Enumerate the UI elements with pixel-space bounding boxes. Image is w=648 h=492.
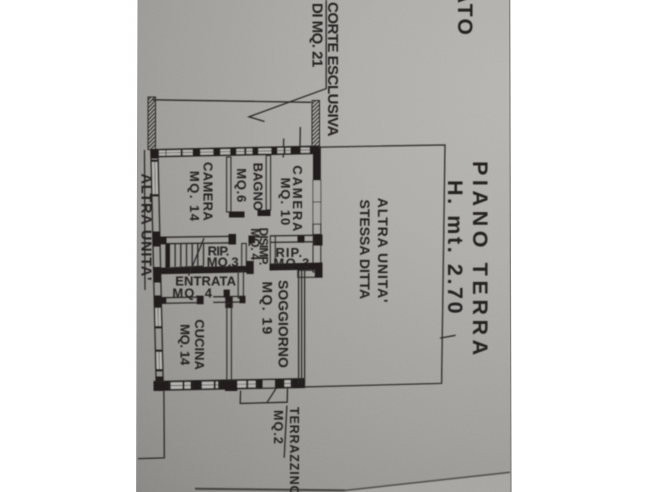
svg-text:BAGNO: BAGNO [251, 163, 266, 211]
svg-text:PIANO TERRA: PIANO TERRA [468, 161, 492, 360]
svg-text:ATO: ATO [453, 0, 476, 37]
svg-text:MQ. 19: MQ. 19 [259, 281, 275, 335]
svg-text:MQ.2: MQ.2 [271, 410, 285, 445]
svg-text:ALTRA UNITA': ALTRA UNITA' [375, 198, 391, 304]
svg-text:TERRAZZINO: TERRAZZINO [287, 407, 301, 492]
svg-text:MQ. 4: MQ. 4 [248, 228, 262, 260]
svg-text:ALTRA UNITA': ALTRA UNITA' [138, 174, 154, 282]
svg-text:MQ.6: MQ.6 [234, 168, 249, 203]
svg-text:MQ. 4: MQ. 4 [172, 285, 213, 300]
svg-text:STESSA DITTA: STESSA DITTA [357, 200, 373, 300]
svg-text:MQ.3: MQ.3 [273, 255, 310, 270]
svg-text:MQ.3: MQ.3 [207, 255, 239, 270]
svg-text:MQ. 14: MQ. 14 [187, 171, 202, 223]
svg-text:MQ. 10: MQ. 10 [278, 178, 293, 227]
svg-text:CUCINA: CUCINA [192, 319, 207, 370]
svg-text:SOGGIORNO: SOGGIORNO [276, 280, 292, 368]
svg-text:MQ. 14: MQ. 14 [178, 324, 193, 366]
svg-text:DI MQ. 21: DI MQ. 21 [309, 3, 326, 67]
svg-text:H. mt. 2.70: H. mt. 2.70 [443, 180, 467, 316]
